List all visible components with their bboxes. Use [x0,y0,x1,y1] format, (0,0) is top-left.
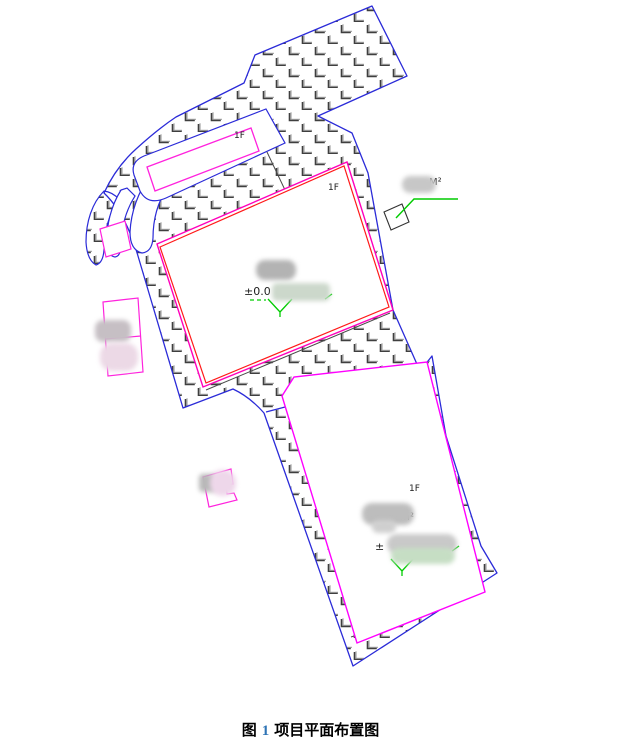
bracket-structure [203,469,237,507]
figure-caption-title: 项目平面布置图 [274,723,379,739]
figure-caption: 图1项目平面布置图 [0,719,621,740]
site-plan-figure: 1F 1F 1F ±0.0 640m² ± M² 图1项目平面布置图 [0,0,621,749]
figure-caption-number: 1 [262,723,270,739]
figure-caption-prefix: 图 [242,723,257,739]
left-label-block [103,298,143,376]
building1-elevation-label: ±0.0 [244,286,271,297]
gatehouse-area-unit-label: M² [429,178,442,188]
site-plan-drawing [0,0,621,749]
building2-area-label: 640m² [381,513,414,523]
small-building-floor-label: 1F [234,132,245,141]
building2-elevation-prefix-label: ± [375,541,384,552]
building1-floor-label: 1F [328,184,339,193]
building2-floor-label: 1F [409,485,420,494]
